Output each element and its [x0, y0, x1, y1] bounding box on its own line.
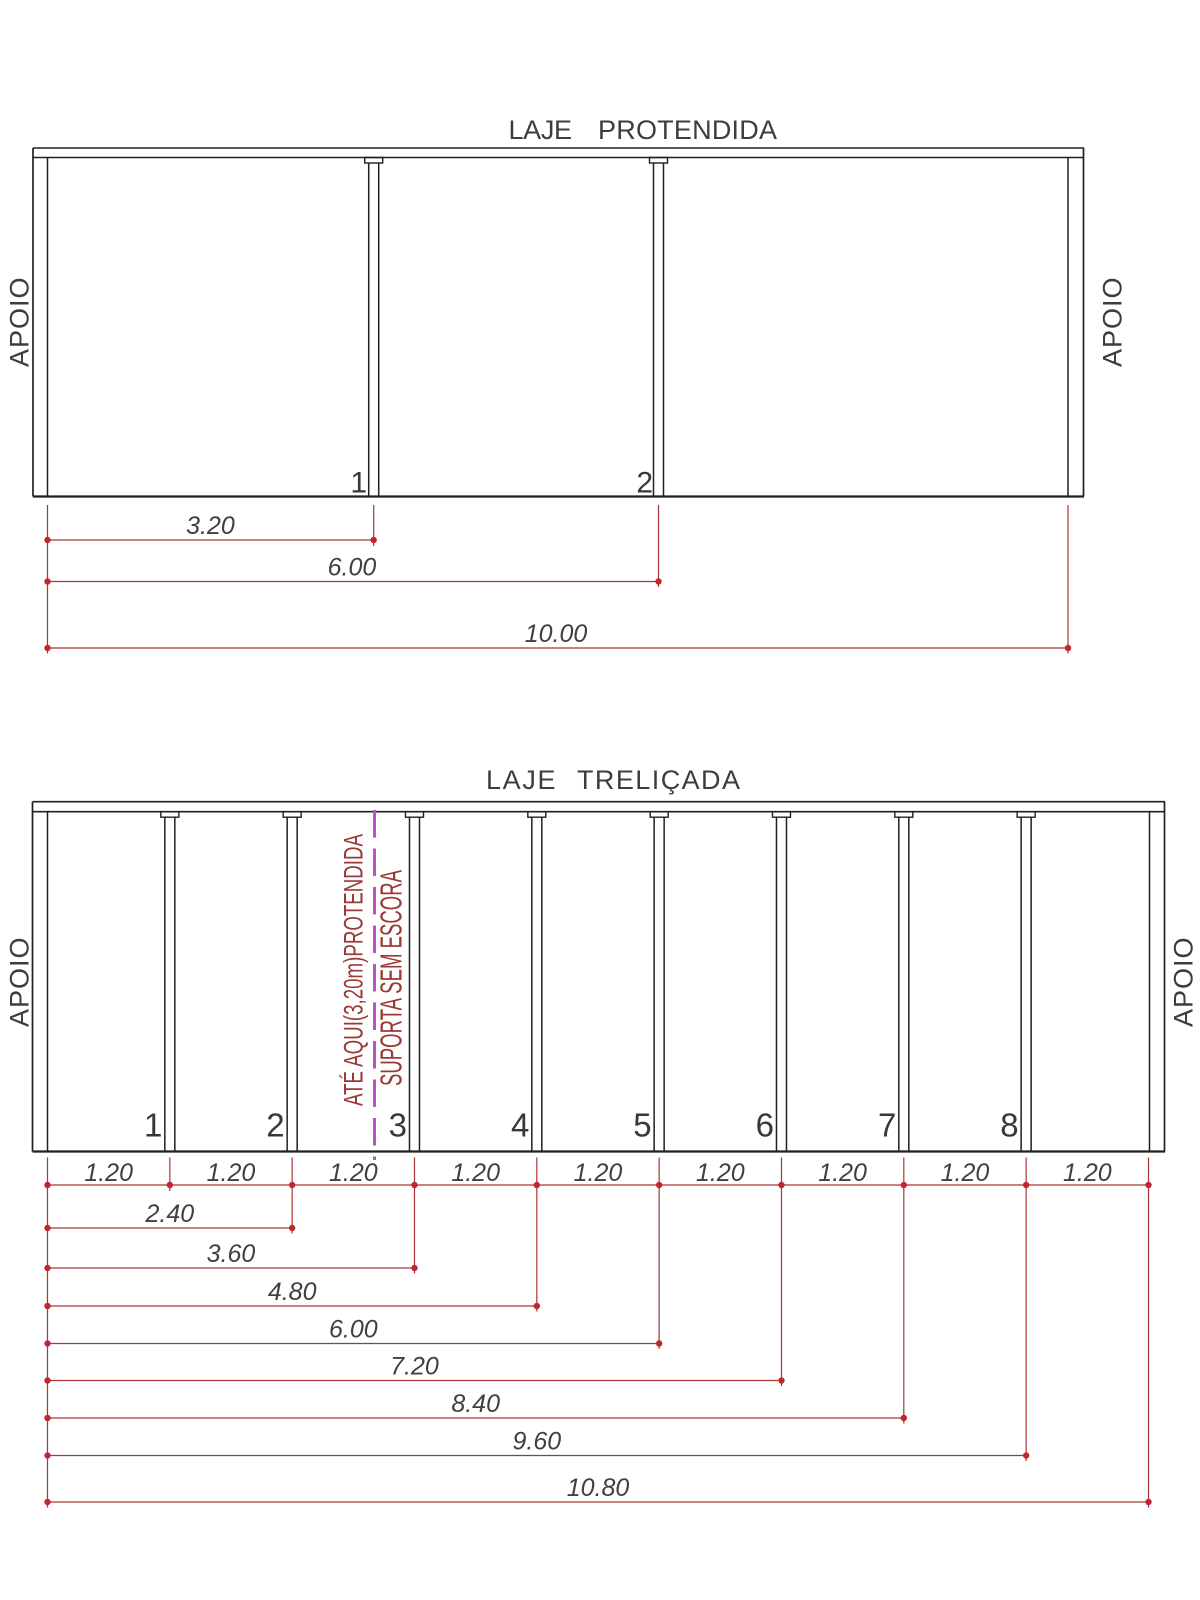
svg-text:1.20: 1.20 — [818, 1159, 867, 1187]
svg-text:3.20: 3.20 — [186, 512, 235, 540]
svg-text:1.20: 1.20 — [451, 1159, 500, 1187]
svg-text:APOIO: APOIO — [1098, 276, 1128, 367]
svg-text:4.80: 4.80 — [268, 1278, 317, 1306]
svg-text:1.20: 1.20 — [1063, 1159, 1112, 1187]
svg-text:SUPORTA SEM ESCORA: SUPORTA SEM ESCORA — [375, 870, 409, 1086]
svg-text:10.80: 10.80 — [567, 1474, 630, 1502]
svg-text:1.20: 1.20 — [207, 1159, 256, 1187]
svg-text:1.20: 1.20 — [941, 1159, 990, 1187]
svg-text:2: 2 — [266, 1107, 284, 1144]
svg-text:2.40: 2.40 — [144, 1200, 194, 1228]
svg-text:3: 3 — [389, 1107, 407, 1144]
svg-text:1.20: 1.20 — [696, 1159, 745, 1187]
svg-text:3.60: 3.60 — [207, 1240, 256, 1268]
svg-text:6: 6 — [756, 1107, 774, 1144]
svg-text:2: 2 — [636, 467, 653, 500]
svg-text:APOIO: APOIO — [1169, 936, 1199, 1027]
svg-text:1: 1 — [350, 467, 367, 500]
svg-text:APOIO: APOIO — [5, 276, 35, 367]
svg-text:1.20: 1.20 — [84, 1159, 133, 1187]
svg-text:1.20: 1.20 — [574, 1159, 623, 1187]
svg-text:ATÉ AQUI(3,20m)PROTENDIDA: ATÉ AQUI(3,20m)PROTENDIDA — [339, 834, 369, 1106]
svg-text:4: 4 — [511, 1107, 529, 1144]
svg-text:8.40: 8.40 — [451, 1390, 500, 1418]
svg-text:9.60: 9.60 — [512, 1428, 561, 1456]
svg-text:10.00: 10.00 — [525, 620, 588, 648]
svg-text:1: 1 — [144, 1107, 162, 1144]
svg-text:PROTENDIDA: PROTENDIDA — [598, 115, 777, 145]
svg-text:6.00: 6.00 — [328, 554, 377, 582]
svg-text:8: 8 — [1000, 1107, 1018, 1144]
svg-text:LAJE: LAJE — [509, 115, 573, 145]
svg-text:6.00: 6.00 — [329, 1316, 378, 1344]
svg-text:7.20: 7.20 — [390, 1353, 439, 1381]
svg-text:TRELIÇADA: TRELIÇADA — [577, 765, 740, 795]
svg-text:1.20: 1.20 — [329, 1159, 378, 1187]
svg-text:7: 7 — [878, 1107, 896, 1144]
svg-text:5: 5 — [633, 1107, 651, 1144]
svg-text:APOIO: APOIO — [5, 936, 35, 1027]
